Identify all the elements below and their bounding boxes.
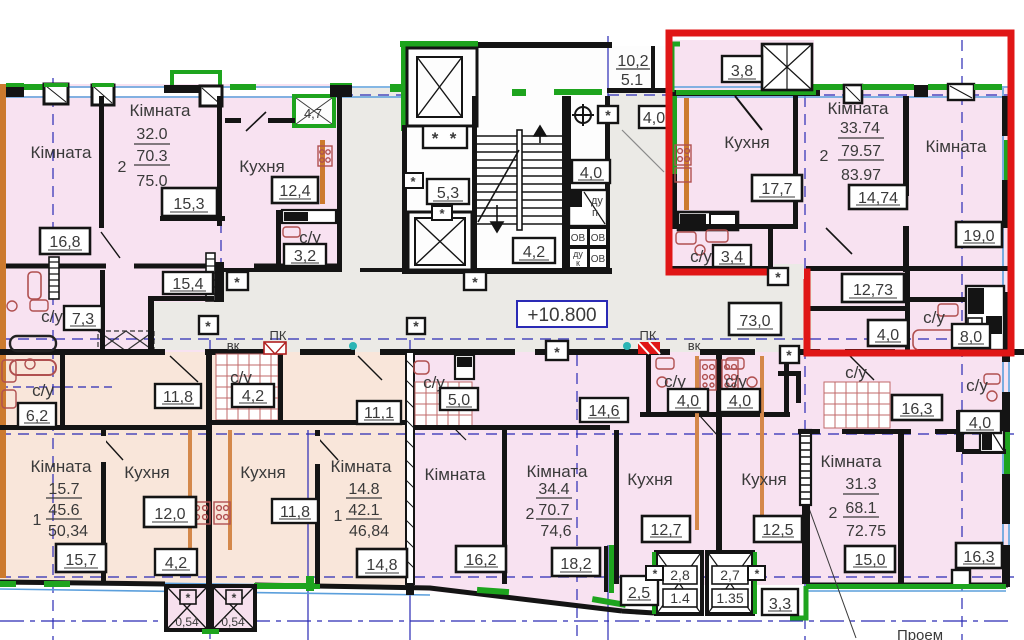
svg-text:*: * xyxy=(775,269,781,285)
svg-text:70.7: 70.7 xyxy=(538,502,569,519)
svg-text:11,1: 11,1 xyxy=(364,405,394,422)
svg-text:Кухня: Кухня xyxy=(239,157,285,176)
svg-text:ПК: ПК xyxy=(270,328,287,343)
svg-text:Кімната: Кімната xyxy=(828,99,889,118)
svg-text:3,8: 3,8 xyxy=(731,63,753,80)
svg-text:*: * xyxy=(205,318,211,334)
svg-text:3,2: 3,2 xyxy=(294,248,316,265)
svg-text:4,0: 4,0 xyxy=(677,393,699,410)
svg-text:2: 2 xyxy=(118,159,127,176)
svg-text:2: 2 xyxy=(829,505,838,522)
svg-text:73,0: 73,0 xyxy=(739,313,770,330)
svg-text:15.7: 15.7 xyxy=(48,481,79,498)
svg-text:Кімната: Кімната xyxy=(425,465,486,484)
svg-text:18,2: 18,2 xyxy=(560,556,591,573)
svg-text:5,3: 5,3 xyxy=(437,185,459,202)
svg-text:+10.800: +10.800 xyxy=(527,305,596,326)
svg-text:31.3: 31.3 xyxy=(845,476,876,493)
svg-text:7,3: 7,3 xyxy=(72,311,94,328)
svg-text:ОВ: ОВ xyxy=(591,254,606,265)
svg-text:4,0: 4,0 xyxy=(877,327,899,344)
svg-text:4,0: 4,0 xyxy=(580,165,602,182)
svg-text:19,0: 19,0 xyxy=(963,228,994,245)
svg-text:68.1: 68.1 xyxy=(845,500,876,517)
svg-text:Кімната: Кімната xyxy=(130,101,191,120)
svg-text:5,0: 5,0 xyxy=(448,392,470,409)
svg-text:п: п xyxy=(592,207,598,219)
svg-text:12,73: 12,73 xyxy=(853,282,893,299)
svg-text:*: * xyxy=(653,567,658,581)
svg-text:Кухня: Кухня xyxy=(724,133,770,152)
svg-text:1: 1 xyxy=(33,512,42,529)
svg-text:*: * xyxy=(450,129,457,148)
svg-text:3,4: 3,4 xyxy=(721,249,743,266)
svg-text:15,4: 15,4 xyxy=(172,276,203,293)
svg-text:17,7: 17,7 xyxy=(761,181,792,198)
svg-text:15,3: 15,3 xyxy=(173,196,204,213)
svg-text:4,2: 4,2 xyxy=(242,388,264,405)
svg-text:12,4: 12,4 xyxy=(279,183,310,200)
svg-text:*: * xyxy=(755,567,760,581)
svg-text:4,0: 4,0 xyxy=(729,393,751,410)
svg-text:34.4: 34.4 xyxy=(538,481,569,498)
svg-text:0,54: 0,54 xyxy=(175,615,199,629)
svg-text:Проем: Проем xyxy=(897,627,943,640)
svg-text:12,0: 12,0 xyxy=(154,506,185,523)
svg-text:Кімната: Кімната xyxy=(31,457,92,476)
svg-text:2: 2 xyxy=(820,148,829,165)
svg-text:Кухня: Кухня xyxy=(741,470,787,489)
svg-text:*: * xyxy=(472,274,478,290)
svg-text:50,34: 50,34 xyxy=(48,523,88,540)
svg-text:14.8: 14.8 xyxy=(348,481,379,498)
svg-text:1: 1 xyxy=(334,508,343,525)
svg-text:*: * xyxy=(554,344,560,360)
svg-text:16,8: 16,8 xyxy=(49,234,80,251)
svg-text:14,8: 14,8 xyxy=(366,557,397,574)
svg-text:*: * xyxy=(786,347,792,363)
svg-text:8,0: 8,0 xyxy=(960,329,982,346)
svg-text:Кімната: Кімната xyxy=(331,457,392,476)
svg-text:46,84: 46,84 xyxy=(349,523,389,540)
svg-text:*: * xyxy=(413,318,419,334)
svg-text:Кухня: Кухня xyxy=(124,463,170,482)
svg-text:2,8: 2,8 xyxy=(670,567,690,583)
svg-text:1.4: 1.4 xyxy=(670,590,690,606)
svg-text:4,0: 4,0 xyxy=(969,415,991,432)
svg-text:16,3: 16,3 xyxy=(963,549,994,566)
svg-text:*: * xyxy=(232,591,237,605)
svg-text:83.97: 83.97 xyxy=(841,167,881,184)
svg-text:32.0: 32.0 xyxy=(136,126,167,143)
svg-text:с/у: с/у xyxy=(690,247,712,266)
svg-text:*: * xyxy=(186,591,191,605)
svg-text:Кімната: Кімната xyxy=(31,143,92,162)
svg-text:к: к xyxy=(576,258,580,268)
svg-text:3,3: 3,3 xyxy=(769,596,791,613)
svg-text:4,7: 4,7 xyxy=(304,106,322,121)
svg-text:12,5: 12,5 xyxy=(762,522,793,539)
svg-text:4,0: 4,0 xyxy=(643,110,665,127)
svg-text:74,6: 74,6 xyxy=(540,523,571,540)
svg-text:16,3: 16,3 xyxy=(901,401,932,418)
svg-text:вк: вк xyxy=(227,338,240,353)
svg-text:33.74: 33.74 xyxy=(840,120,880,137)
svg-text:ду: ду xyxy=(591,195,603,207)
svg-text:79.57: 79.57 xyxy=(841,143,881,160)
svg-text:70.3: 70.3 xyxy=(136,148,167,165)
svg-text:5.1: 5.1 xyxy=(621,72,643,89)
svg-text:Кімната: Кімната xyxy=(926,137,987,156)
svg-text:*: * xyxy=(234,274,240,290)
svg-text:*: * xyxy=(432,129,439,148)
svg-text:2: 2 xyxy=(526,506,535,523)
svg-text:*: * xyxy=(605,107,611,123)
svg-text:2,5: 2,5 xyxy=(628,585,650,602)
svg-text:Кімната: Кімната xyxy=(527,462,588,481)
svg-text:с/у: с/у xyxy=(845,363,867,382)
svg-text:42.1: 42.1 xyxy=(348,502,379,519)
svg-text:с/у: с/у xyxy=(32,381,54,400)
svg-text:72.75: 72.75 xyxy=(846,523,886,540)
svg-text:Кімната: Кімната xyxy=(821,452,882,471)
svg-text:11,8: 11,8 xyxy=(163,389,193,406)
svg-text:с/у: с/у xyxy=(923,308,945,327)
svg-text:ПК: ПК xyxy=(640,328,657,343)
svg-text:ОВ: ОВ xyxy=(591,233,606,244)
svg-text:10,2: 10,2 xyxy=(617,53,648,70)
svg-text:Кухня: Кухня xyxy=(627,470,673,489)
svg-text:Кухня: Кухня xyxy=(240,463,286,482)
svg-text:15,7: 15,7 xyxy=(65,552,96,569)
svg-text:15,0: 15,0 xyxy=(854,552,885,569)
svg-text:14,74: 14,74 xyxy=(858,190,898,207)
svg-text:4,2: 4,2 xyxy=(523,244,545,261)
svg-text:2,7: 2,7 xyxy=(720,567,740,583)
svg-text:ОВ: ОВ xyxy=(571,233,586,244)
svg-text:0,54: 0,54 xyxy=(221,615,245,629)
svg-text:с/у: с/у xyxy=(966,376,988,395)
svg-text:вк: вк xyxy=(688,338,701,353)
svg-text:14,6: 14,6 xyxy=(588,403,619,420)
svg-text:6,2: 6,2 xyxy=(26,408,48,425)
svg-text:1.35: 1.35 xyxy=(716,590,743,606)
svg-text:12,7: 12,7 xyxy=(650,522,681,539)
svg-text:16,2: 16,2 xyxy=(465,552,496,569)
svg-text:4,2: 4,2 xyxy=(165,555,187,572)
svg-text:11,8: 11,8 xyxy=(280,504,310,521)
svg-text:45.6: 45.6 xyxy=(48,502,79,519)
svg-text:с/у: с/у xyxy=(41,307,63,326)
